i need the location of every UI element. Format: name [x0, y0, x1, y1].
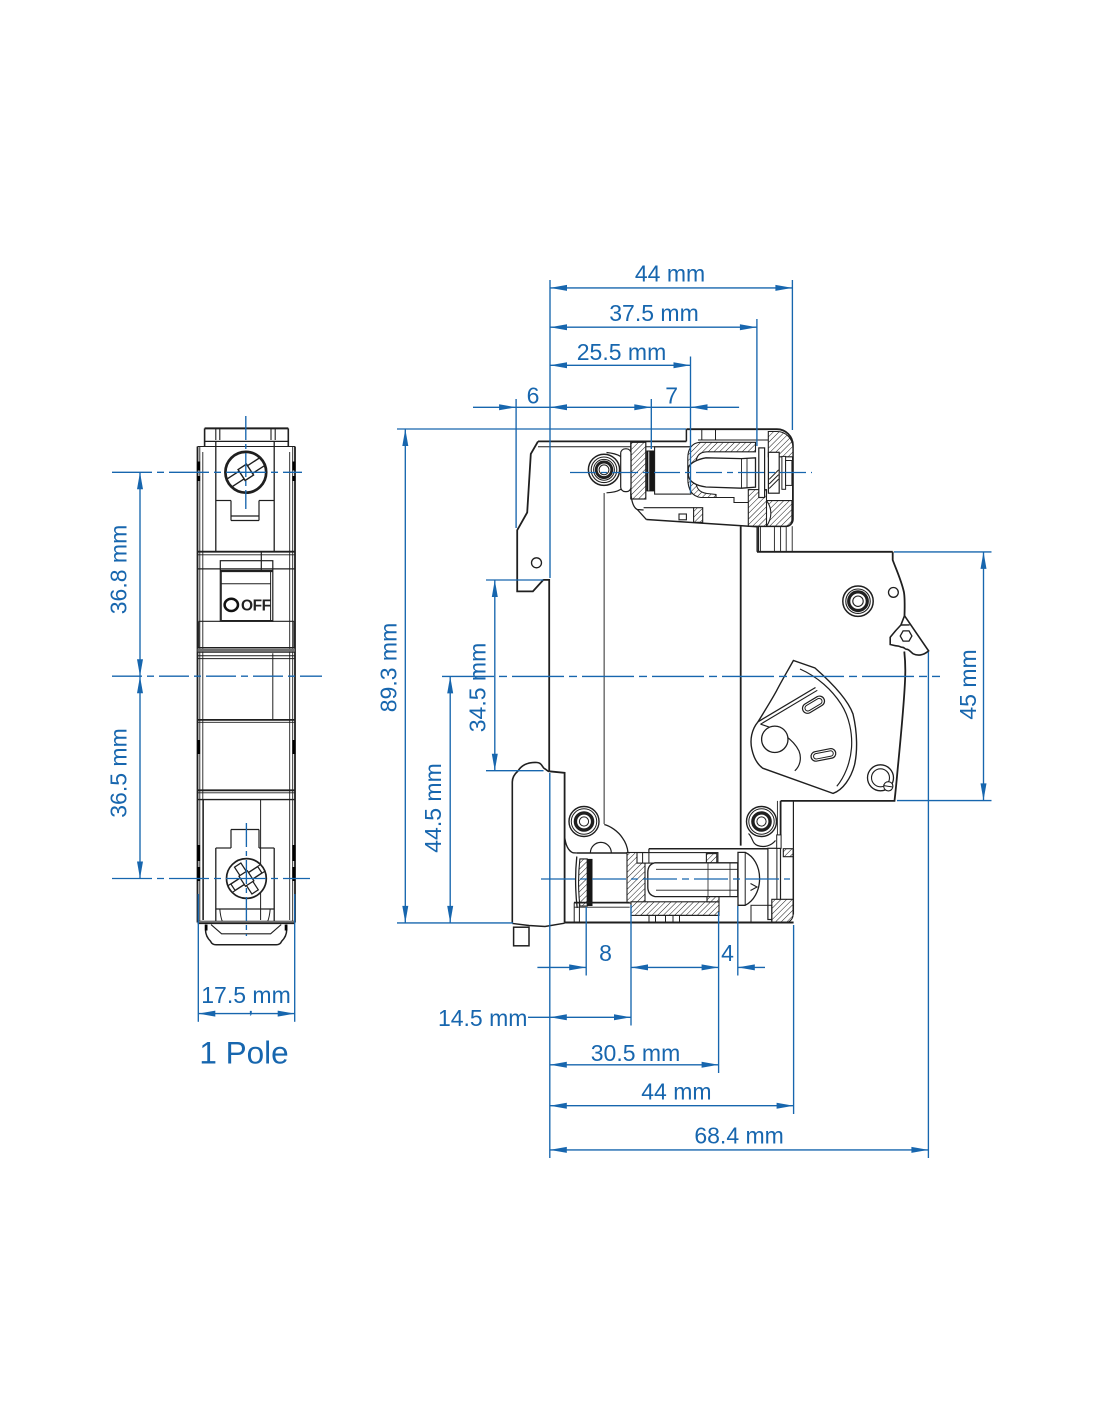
svg-text:30.5 mm: 30.5 mm [591, 1040, 680, 1066]
svg-text:34.5 mm: 34.5 mm [465, 643, 491, 732]
svg-text:68.4 mm: 68.4 mm [694, 1122, 783, 1148]
svg-text:8: 8 [599, 940, 612, 966]
svg-text:,: , [248, 996, 254, 1018]
svg-text:45 mm: 45 mm [955, 649, 981, 719]
svg-text:6: 6 [527, 383, 540, 409]
svg-text:7: 7 [665, 383, 678, 409]
svg-text:36.8 mm: 36.8 mm [105, 525, 131, 614]
svg-text:1 Pole: 1 Pole [199, 1035, 288, 1071]
svg-text:89.3 mm: 89.3 mm [376, 623, 402, 712]
svg-text:17.5 mm: 17.5 mm [201, 982, 290, 1008]
svg-text:44 mm: 44 mm [641, 1078, 711, 1104]
svg-text:4: 4 [721, 940, 734, 966]
svg-text:OFF: OFF [241, 597, 271, 614]
svg-text:44.5 mm: 44.5 mm [420, 763, 446, 852]
svg-text:25.5 mm: 25.5 mm [577, 339, 666, 365]
svg-text:37.5 mm: 37.5 mm [609, 300, 698, 326]
svg-text:44 mm: 44 mm [635, 261, 705, 287]
svg-text:36.5 mm: 36.5 mm [105, 728, 131, 817]
svg-text:14.5 mm: 14.5 mm [438, 1005, 527, 1031]
